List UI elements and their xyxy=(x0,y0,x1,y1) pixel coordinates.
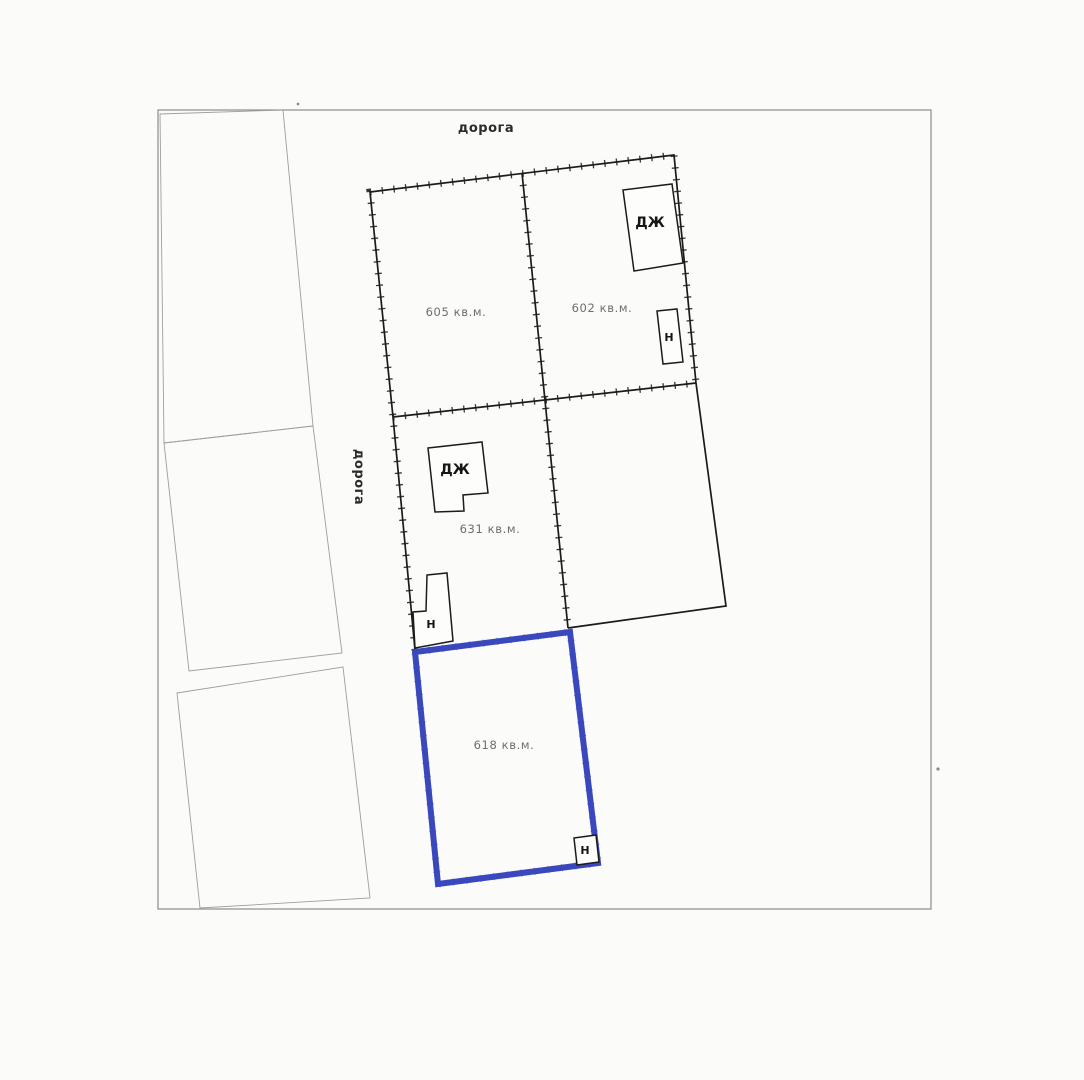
highlighted-parcel-boundary xyxy=(415,632,598,884)
building-label-n-parcel631: Н xyxy=(426,618,435,631)
adjacent-parcel-top xyxy=(160,110,313,443)
building-label-dzh-parcel602: ДЖ xyxy=(635,215,665,231)
adjacent-parcel-middle xyxy=(164,426,342,671)
building-label-n-parcel602: Н xyxy=(664,331,673,344)
parcel-area-label-631: 631 кв.м. xyxy=(460,522,521,536)
adjacent-parcel-bottom xyxy=(177,667,370,908)
sheet-border xyxy=(158,110,931,909)
cadastral-plan-canvas: дорога дорога 605 кв.м. 602 кв.м. 631 кв… xyxy=(0,0,1084,1080)
building-label-n-parcel618: Н xyxy=(580,844,589,857)
road-label-top: дорога xyxy=(458,121,514,136)
highlighted-parcel-618 xyxy=(415,632,598,884)
adjacent-parcels xyxy=(160,110,370,908)
survey-tick-marks-highlighted xyxy=(415,632,598,884)
parcel-area-label-605: 605 кв.м. xyxy=(426,305,487,319)
parcel-area-label-618: 618 кв.м. xyxy=(474,738,535,752)
buildings xyxy=(413,184,683,865)
building-label-dzh-parcel631: ДЖ xyxy=(440,462,470,478)
building-n-parcel631 xyxy=(413,573,453,648)
scan-speck xyxy=(297,103,300,106)
road-label-left: дорога xyxy=(351,449,366,505)
scan-speck xyxy=(936,767,939,770)
parcel-area-label-602: 602 кв.м. xyxy=(572,301,633,315)
